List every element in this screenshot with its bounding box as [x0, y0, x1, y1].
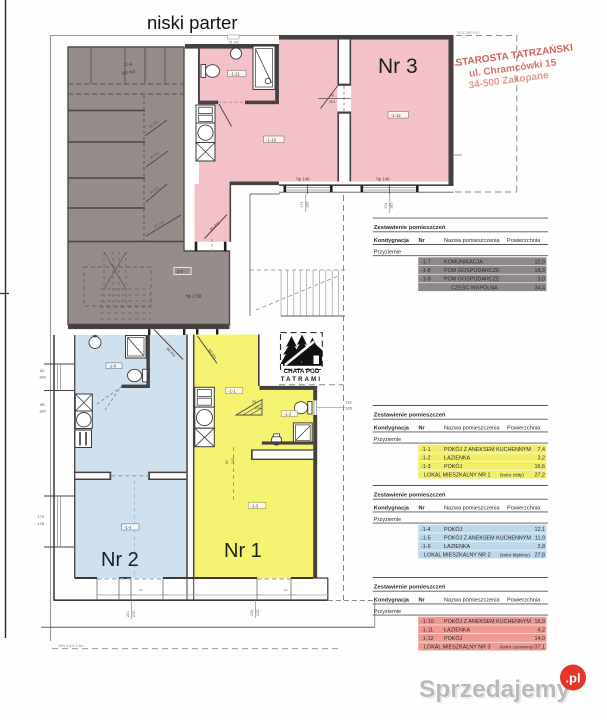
- svg-text:-1-12: -1-12: [391, 113, 402, 118]
- svg-text:16,6: 16,6: [535, 464, 546, 470]
- svg-text:Nazwa pomieszczenia: Nazwa pomieszczenia: [444, 426, 501, 432]
- svg-text:Kondygnacja: Kondygnacja: [374, 426, 410, 432]
- svg-text:174: 174: [300, 202, 304, 208]
- svg-text:Nazwa pomieszczenia: Nazwa pomieszczenia: [444, 506, 501, 512]
- svg-text:-1-9: -1-9: [421, 277, 431, 283]
- svg-text:Powierzchnia: Powierzchnia: [507, 238, 541, 244]
- svg-text:82: 82: [40, 368, 45, 373]
- svg-text:POM GOSPODARCZE: POM GOSPODARCZE: [444, 268, 500, 274]
- svg-text:LOKAL MIESZKALNY NR 1: LOKAL MIESZKALNY NR 1: [424, 473, 491, 479]
- svg-text:POKÓJ Z ANEKSEM KUCHENNYM: POKÓJ Z ANEKSEM KUCHENNYM: [444, 618, 531, 625]
- svg-text:12,1: 12,1: [535, 527, 546, 533]
- svg-text:Nazwa pomieszczenia: Nazwa pomieszczenia: [444, 598, 501, 604]
- svg-text:-1-10: -1-10: [266, 137, 277, 142]
- svg-text:98: 98: [40, 402, 45, 407]
- svg-text:Zestawienie pomieszczeń: Zestawienie pomieszczeń: [374, 225, 446, 231]
- svg-text:(kolor błękitny): (kolor błękitny): [500, 552, 530, 557]
- svg-text:-1-12: -1-12: [421, 636, 434, 642]
- svg-text:Powierzchnia: Powierzchnia: [507, 506, 541, 512]
- svg-text:20: 20: [252, 400, 256, 404]
- svg-text:⇦: ⇦: [284, 588, 288, 593]
- svg-text:Sprzedajemy: Sprzedajemy: [419, 676, 571, 703]
- svg-text:Nr: Nr: [419, 238, 426, 244]
- svg-text:-1-5: -1-5: [421, 536, 431, 542]
- svg-text:(kolor czerwony): (kolor czerwony): [500, 644, 534, 649]
- svg-text:ŁAZIENKA: ŁAZIENKA: [444, 456, 470, 462]
- svg-text:34,4: 34,4: [535, 285, 546, 291]
- svg-text:190: 190: [39, 409, 46, 414]
- svg-text:-1-2: -1-2: [421, 456, 431, 462]
- svg-text:105: 105: [390, 203, 394, 209]
- svg-text:210: 210: [256, 610, 260, 616]
- svg-text:221: 221: [126, 611, 130, 617]
- svg-text:12,9: 12,9: [535, 260, 546, 266]
- svg-text:Przyziemie: Przyziemie: [374, 609, 401, 615]
- svg-text:Powierzchnia: Powierzchnia: [507, 426, 541, 432]
- svg-text:POKÓJ Z ANEKSEM KUCHENNYM: POKÓJ Z ANEKSEM KUCHENNYM: [444, 535, 531, 542]
- svg-text:.pl: .pl: [565, 671, 580, 686]
- svg-text:hp 140: hp 140: [297, 177, 310, 182]
- svg-text:KOMUNIKACJA: KOMUNIKACJA: [444, 260, 483, 266]
- svg-text:-1-3: -1-3: [421, 464, 431, 470]
- svg-text:7,4: 7,4: [538, 447, 546, 453]
- svg-text:110: 110: [346, 401, 352, 405]
- svg-text:1-7: 1-7: [177, 269, 184, 274]
- svg-text:Nr 3: Nr 3: [378, 55, 418, 78]
- svg-text:170: 170: [38, 514, 45, 519]
- svg-text:Nazwa pomieszczenia: Nazwa pomieszczenia: [444, 238, 501, 244]
- svg-text:Nr: Nr: [419, 598, 426, 604]
- svg-text:3,2: 3,2: [538, 456, 546, 462]
- svg-text:105: 105: [306, 202, 310, 208]
- svg-text:128: 128: [38, 521, 45, 526]
- svg-text:CZĘŚĆ WSPÓLNA: CZĘŚĆ WSPÓLNA: [451, 283, 498, 291]
- svg-text:78: 78: [330, 94, 334, 98]
- svg-text:18,9: 18,9: [535, 619, 546, 625]
- svg-text:3,8: 3,8: [538, 544, 546, 550]
- svg-text:-1-4: -1-4: [421, 527, 431, 533]
- svg-text:-1-3: -1-3: [251, 503, 259, 508]
- svg-text:POKÓJ Z ANEKSEM KUCHENNYM: POKÓJ Z ANEKSEM KUCHENNYM: [444, 446, 531, 453]
- svg-text:hp 140: hp 140: [377, 177, 390, 182]
- svg-text:Zestawienie pomieszczeń: Zestawienie pomieszczeń: [374, 412, 446, 418]
- svg-text:27,2: 27,2: [535, 473, 546, 479]
- svg-text:Kondygnacja: Kondygnacja: [374, 506, 410, 512]
- svg-text:ŁAZIENKA: ŁAZIENKA: [444, 628, 470, 634]
- svg-text:Nr 1: Nr 1: [224, 540, 262, 562]
- svg-text:Powierzchnia: Powierzchnia: [507, 598, 541, 604]
- svg-text:Kondygnacja: Kondygnacja: [374, 238, 410, 244]
- svg-text:hp 2,50: hp 2,50: [186, 294, 202, 299]
- svg-text:220: 220: [250, 610, 254, 616]
- svg-text:Nr 2: Nr 2: [101, 549, 139, 571]
- svg-text:-1-2: -1-2: [284, 412, 292, 417]
- svg-text:-1-10: -1-10: [421, 619, 434, 625]
- svg-text:Nr: Nr: [419, 426, 426, 432]
- svg-text:-1-4: -1-4: [124, 525, 132, 530]
- svg-text:POKÓJ: POKÓJ: [444, 526, 463, 533]
- svg-text:Przyziemie: Przyziemie: [374, 249, 401, 255]
- svg-text:-1-6: -1-6: [421, 544, 431, 550]
- svg-text:210: 210: [132, 611, 136, 617]
- svg-text:(kolor żółty): (kolor żółty): [500, 472, 524, 477]
- svg-text:LOKAL MIESZKALNY NR 2: LOKAL MIESZKALNY NR 2: [424, 553, 491, 559]
- svg-text:Nr: Nr: [419, 506, 426, 512]
- svg-text:210: 210: [231, 458, 235, 464]
- svg-text:ŁAZIENKA: ŁAZIENKA: [444, 544, 470, 550]
- svg-text:-1-6: -1-6: [109, 364, 117, 369]
- svg-text:174: 174: [384, 203, 388, 209]
- svg-text:Kondygnacja: Kondygnacja: [374, 598, 410, 604]
- svg-text:LOKAL MIESZKALNY NR 3: LOKAL MIESZKALNY NR 3: [424, 645, 491, 651]
- svg-text:Przyziemie: Przyziemie: [374, 437, 401, 443]
- svg-text:-1-9: -1-9: [124, 62, 132, 67]
- svg-text:niski parter: niski parter: [147, 12, 237, 33]
- svg-text:POM GOSPODARCZE: POM GOSPODARCZE: [444, 277, 500, 283]
- svg-text:18,3: 18,3: [535, 268, 546, 274]
- svg-text:Zestawienie pomieszczeń: Zestawienie pomieszczeń: [374, 492, 446, 498]
- svg-text:Przyziemie: Przyziemie: [374, 517, 401, 523]
- svg-text:3,0: 3,0: [538, 277, 546, 283]
- svg-text:⇦: ⇦: [139, 588, 143, 593]
- svg-text:POKÓJ: POKÓJ: [444, 463, 463, 470]
- svg-text:62: 62: [225, 460, 229, 464]
- svg-text:11,9: 11,9: [535, 536, 545, 542]
- svg-text:-1-7: -1-7: [421, 260, 431, 266]
- svg-text:03112/BP1/43: 03112/BP1/43: [457, 31, 480, 35]
- svg-text:TATRAMI: TATRAMI: [281, 377, 323, 383]
- svg-text:4,2: 4,2: [538, 628, 546, 634]
- svg-text:Zestawienie pomieszczeń: Zestawienie pomieszczeń: [374, 584, 446, 590]
- svg-text:27,8: 27,8: [535, 553, 546, 559]
- svg-text:201: 201: [329, 100, 335, 104]
- svg-text:-1-1: -1-1: [228, 389, 236, 394]
- svg-text:-1-1: -1-1: [421, 447, 431, 453]
- svg-text:75 142: 75 142: [229, 41, 239, 45]
- svg-text:18% 9,8% 1,2m: 18% 9,8% 1,2m: [58, 644, 83, 648]
- svg-text:-1-11: -1-11: [230, 72, 240, 77]
- svg-text:14,0: 14,0: [535, 636, 546, 642]
- svg-text:-1-8: -1-8: [421, 268, 431, 274]
- svg-text:POKÓJ: POKÓJ: [444, 635, 463, 642]
- svg-text:105: 105: [346, 407, 352, 411]
- svg-text:CHATA POD: CHATA POD: [284, 368, 320, 375]
- svg-text:211: 211: [255, 406, 261, 410]
- svg-text:190: 190: [39, 375, 46, 380]
- svg-text:37,1: 37,1: [535, 645, 546, 651]
- svg-text:-1-11: -1-11: [421, 628, 433, 634]
